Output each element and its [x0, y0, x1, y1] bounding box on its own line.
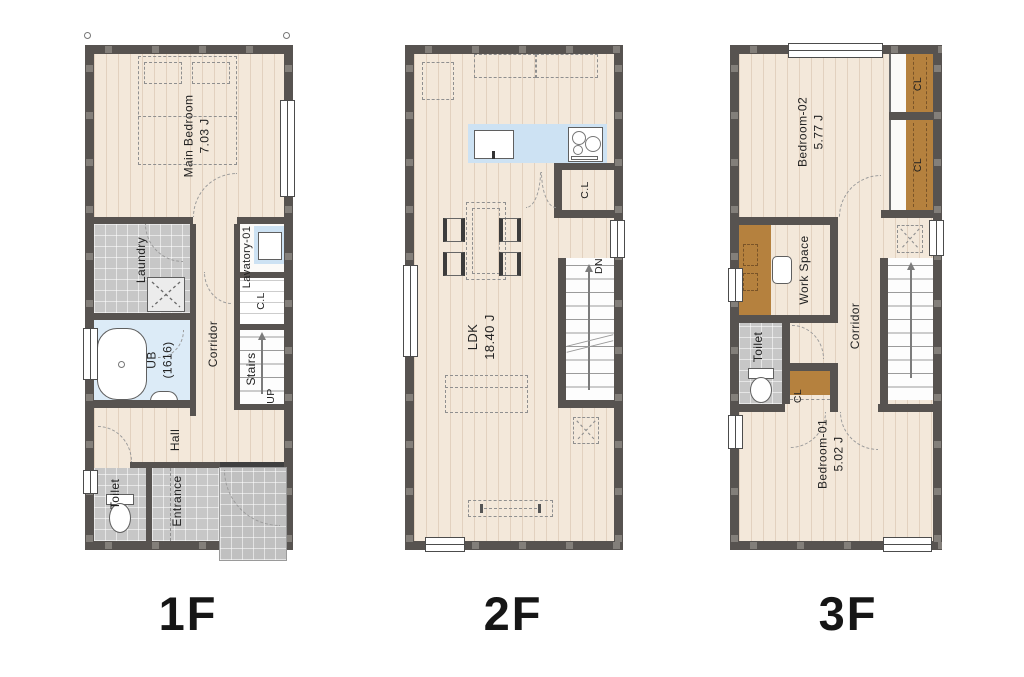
room-label-closet: C.L — [579, 181, 593, 199]
window — [83, 328, 98, 380]
room-label-bath: UB (1616) — [144, 341, 175, 378]
floor-plan-figure: Main Bedroom 7.03 J Laundry Lavatory-01 … — [0, 0, 1024, 677]
room-name: Stairs — [244, 352, 260, 385]
room-label-ldk: LDK 18.40 J — [465, 314, 499, 359]
grill-drawer — [571, 156, 598, 160]
entrance-floor — [152, 468, 220, 541]
window — [403, 265, 418, 357]
room-name: UB — [144, 351, 160, 368]
room-label-laundry: Laundry — [134, 237, 150, 283]
stairs-arrow — [910, 268, 912, 378]
room-label-main-bedroom: Main Bedroom 7.03 J — [181, 95, 212, 178]
room-name: Hall — [168, 429, 184, 451]
room-name: LDK — [465, 324, 482, 351]
wall — [878, 404, 933, 412]
door-swing — [541, 172, 556, 208]
attic-hatch — [573, 417, 599, 444]
wall — [889, 112, 933, 120]
tv-leg — [538, 504, 541, 513]
room-label-corridor: Corridor — [206, 321, 222, 368]
drain — [118, 361, 125, 368]
stairs — [566, 258, 614, 400]
door-swing — [792, 325, 824, 359]
stairs-arrow-head — [258, 332, 266, 340]
window — [610, 220, 625, 258]
room-name: Laundry — [134, 237, 150, 283]
hatch-x-mark — [574, 418, 598, 443]
room-size: 18.40 J — [482, 314, 499, 359]
room-name: Toilet — [108, 479, 124, 509]
wall — [94, 313, 190, 320]
wall — [554, 210, 614, 218]
door-swing — [204, 272, 232, 304]
floor-plan-2f: LDK 18.40 J C.L DN — [405, 45, 623, 550]
hatch-x-mark — [898, 226, 922, 252]
room-name: CL — [912, 158, 926, 172]
closet-partition — [889, 54, 891, 212]
room-label-lavatory: Lavatory-01 — [240, 226, 254, 289]
room-name: Bedroom-01 — [815, 419, 831, 489]
window — [929, 220, 944, 256]
window — [83, 470, 98, 494]
entrance-door — [220, 462, 284, 467]
room-label-toilet: Toilet — [751, 332, 767, 362]
window — [883, 537, 932, 552]
vanity-sink — [258, 232, 282, 260]
wall — [739, 315, 830, 323]
wall — [234, 404, 284, 410]
window — [280, 100, 295, 197]
survey-marker — [84, 32, 91, 39]
room-name: Bedroom-02 — [795, 97, 811, 167]
faucet — [492, 151, 495, 159]
wall — [830, 363, 838, 404]
wall — [739, 404, 785, 412]
direction: UP — [265, 388, 279, 403]
room-name: Toilet — [751, 332, 767, 362]
wall — [554, 163, 614, 170]
vanity-unit — [254, 226, 284, 264]
door-swing — [193, 173, 237, 217]
wall — [782, 323, 790, 404]
desk-chair — [772, 256, 792, 284]
door-swing — [839, 175, 881, 217]
wall — [94, 400, 196, 408]
room-name: C.L — [579, 181, 593, 199]
wall — [94, 217, 193, 224]
room-label-stairs: Stairs — [244, 352, 260, 385]
attic-hatch — [897, 225, 923, 253]
floor-label-3f: 3F — [819, 586, 878, 641]
direction: DN — [593, 258, 607, 274]
room-name: Entrance — [170, 475, 186, 526]
room-size: (1616) — [160, 341, 176, 378]
desk-item — [743, 273, 758, 291]
room-name: Main Bedroom — [181, 95, 197, 178]
window — [728, 268, 743, 302]
room-size: 7.03 J — [197, 118, 213, 153]
room-size: 5.02 J — [831, 436, 847, 471]
room-label-entrance: Entrance — [170, 475, 186, 526]
room-name: Work Space — [797, 235, 813, 304]
stairs-arrow — [261, 338, 263, 394]
room-name: Corridor — [206, 321, 222, 368]
window — [425, 537, 465, 552]
burner — [573, 145, 583, 155]
door-swing — [98, 426, 132, 462]
room-label-closet-c: CL — [792, 389, 806, 403]
stairs-direction-label: DN — [593, 258, 607, 274]
wall — [558, 258, 566, 405]
sofa — [445, 375, 528, 413]
room-size: 5.77 J — [811, 114, 827, 149]
room-label-closet-a: CL — [912, 77, 926, 91]
wall-cabinet — [474, 54, 536, 78]
chair — [499, 252, 521, 276]
room-label-toilet: Toilet — [108, 479, 124, 509]
floor-plan-3f: Bedroom-02 5.77 J CL CL Work Space Corri… — [730, 45, 942, 550]
room-label-workspace: Work Space — [797, 235, 813, 304]
survey-marker — [283, 32, 290, 39]
wall — [880, 258, 888, 404]
wall — [881, 210, 933, 218]
porch — [220, 468, 286, 560]
room-label-corridor: Corridor — [848, 303, 864, 350]
wall — [237, 217, 284, 224]
pillow — [144, 62, 182, 84]
wall-studs — [85, 46, 293, 53]
tv-line — [484, 508, 537, 509]
wall — [558, 400, 614, 408]
burner — [572, 131, 586, 145]
refrigerator-space — [422, 62, 454, 100]
door-swing — [224, 470, 280, 526]
room-name: CL — [912, 77, 926, 91]
wall-studs — [405, 46, 623, 53]
desk-item — [743, 244, 758, 266]
stairs-arrow — [588, 270, 590, 390]
pillow — [192, 62, 230, 84]
washer-x-mark — [148, 278, 184, 311]
washing-machine — [147, 277, 185, 312]
window — [788, 43, 883, 58]
floor-label-1f: 1F — [159, 586, 218, 641]
wall-studs — [615, 45, 622, 550]
room-label-hall: Hall — [168, 429, 184, 451]
wall — [739, 217, 838, 225]
toilet-bowl — [750, 377, 772, 403]
wall-studs — [934, 45, 941, 550]
chair — [443, 218, 465, 242]
window — [728, 415, 743, 449]
wall — [830, 404, 838, 412]
stairs-arrow-head — [907, 262, 915, 270]
room-name: Lavatory-01 — [240, 226, 254, 289]
room-label-closet: C.L — [255, 292, 269, 310]
stairs-arrow-head — [585, 264, 593, 272]
room-label-bedroom01: Bedroom-01 5.02 J — [815, 419, 846, 489]
door-swing — [526, 172, 541, 208]
room-label-bedroom02: Bedroom-02 5.77 J — [795, 97, 826, 167]
stove — [568, 127, 603, 162]
chair — [443, 252, 465, 276]
burner — [585, 136, 601, 152]
room-name: Corridor — [848, 303, 864, 350]
room-name: C.L — [255, 292, 269, 310]
stairs-direction-label: UP — [265, 388, 279, 403]
bathtub — [97, 328, 147, 400]
sofa-back-line — [445, 387, 528, 388]
wall-cabinet — [536, 54, 598, 78]
wall — [190, 224, 196, 416]
room-label-closet-b: CL — [912, 158, 926, 172]
tv-leg — [480, 504, 483, 513]
floor-label-2f: 2F — [484, 586, 543, 641]
dining-table-inner — [472, 208, 500, 274]
chair — [499, 218, 521, 242]
room-name: CL — [792, 389, 806, 403]
wall — [830, 225, 838, 323]
desk — [739, 225, 771, 315]
